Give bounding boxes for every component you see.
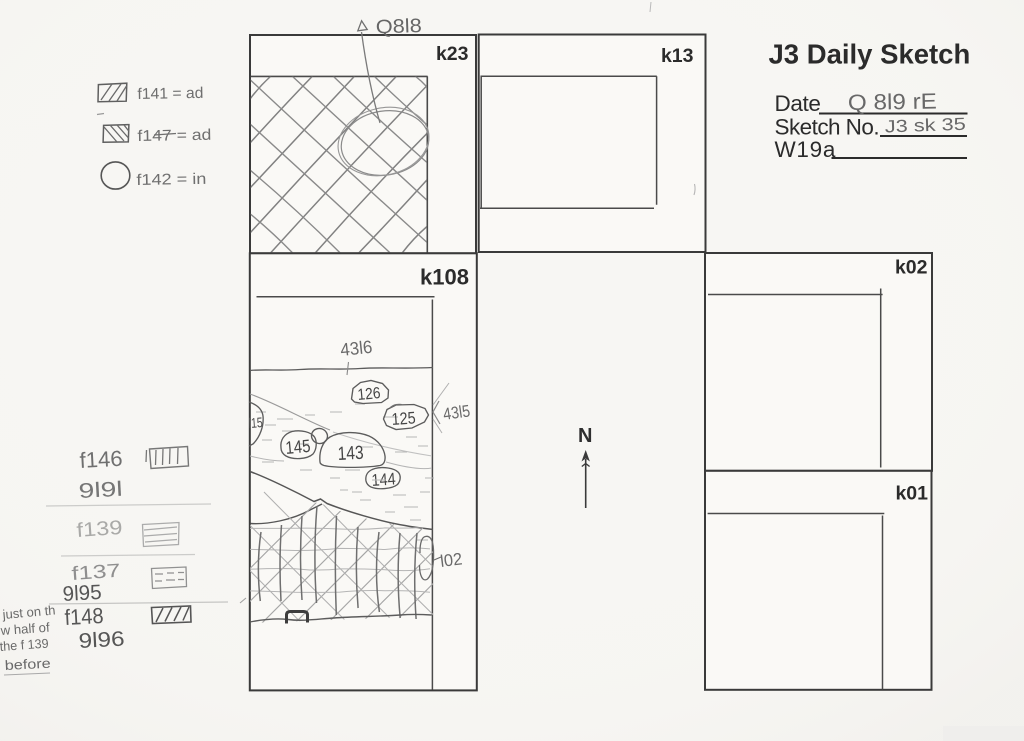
svg-text:l02: l02 bbox=[439, 549, 463, 571]
svg-text:43l5: 43l5 bbox=[442, 401, 471, 424]
svg-text:k23: k23 bbox=[436, 43, 469, 65]
svg-text:143: 143 bbox=[337, 443, 364, 465]
svg-text:9l96: 9l96 bbox=[78, 628, 125, 653]
svg-text:J3 sk 35: J3 sk 35 bbox=[884, 114, 966, 137]
svg-text:N: N bbox=[578, 425, 592, 447]
svg-text:Q 8l9 rE: Q 8l9 rE bbox=[848, 88, 937, 115]
svg-text:9l9l: 9l9l bbox=[78, 478, 123, 503]
svg-text:k13: k13 bbox=[661, 45, 694, 67]
svg-text:f147 = ad: f147 = ad bbox=[137, 127, 211, 145]
svg-text:f141 = ad: f141 = ad bbox=[137, 85, 203, 103]
svg-text:l15: l15 bbox=[248, 414, 263, 431]
svg-text:f148: f148 bbox=[64, 603, 104, 630]
svg-text:145: 145 bbox=[285, 436, 312, 458]
svg-text:W19a: W19a bbox=[775, 137, 837, 162]
svg-text:k108: k108 bbox=[420, 265, 469, 290]
svg-text:43l6: 43l6 bbox=[339, 337, 373, 360]
svg-text:126: 126 bbox=[357, 385, 381, 404]
svg-text:Sketch No.: Sketch No. bbox=[775, 115, 880, 140]
svg-text:before: before bbox=[4, 656, 51, 673]
svg-text:9l95: 9l95 bbox=[62, 581, 102, 606]
svg-text:Q8l8: Q8l8 bbox=[375, 15, 422, 39]
svg-text:125: 125 bbox=[391, 408, 416, 429]
svg-text:f142 = in: f142 = in bbox=[136, 171, 206, 189]
svg-text:J3 Daily Sketch: J3 Daily Sketch bbox=[769, 39, 971, 70]
svg-text:k01: k01 bbox=[895, 483, 928, 505]
svg-text:f146: f146 bbox=[79, 446, 123, 473]
svg-text:f139: f139 bbox=[76, 517, 123, 542]
svg-text:k02: k02 bbox=[895, 257, 928, 279]
svg-text:Date: Date bbox=[775, 91, 821, 116]
